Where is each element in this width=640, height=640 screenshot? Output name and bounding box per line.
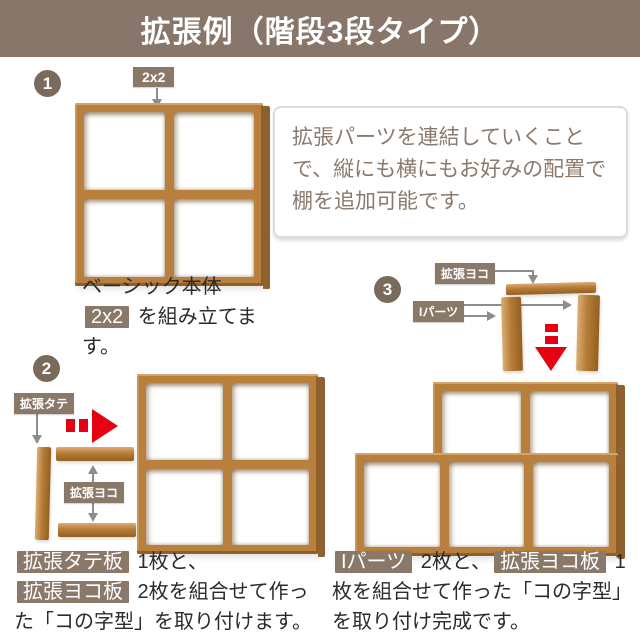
right-arrowhead-icon: [563, 300, 572, 310]
red-right-arrowhead-icon: [92, 409, 118, 443]
shelf-cell: [533, 462, 609, 547]
shelf-2x2-basic: [75, 103, 263, 286]
red-down-arrowhead-icon: [535, 347, 567, 371]
step1-caption: ベーシック本体 2x2 を組み立てます。: [82, 272, 282, 362]
caption-part-badge: Iパーツ: [335, 551, 412, 573]
intro-text: 拡張パーツを連結していくことで、縦にも横にもお好みの配置で棚を追加可能です。: [292, 126, 606, 213]
shelf-cell: [84, 199, 165, 277]
product-infographic: 拡張例（階段3段タイプ） 1 2x2 ベーシック本体 2x2 を組み立てます。 …: [0, 0, 640, 640]
step1-number: 1: [34, 70, 61, 97]
shelf-cell: [84, 112, 165, 190]
label-2x2: 2x2: [133, 67, 174, 87]
caption-text: 1枚と、: [132, 551, 208, 573]
plank-horizontal-yoko-bottom: [58, 523, 136, 537]
caption-part-badge: 拡張ヨコ板: [17, 581, 129, 603]
step3-number: 3: [374, 276, 401, 303]
label-kakucho-yoko-step3: 拡張ヨコ: [435, 263, 495, 284]
down-arrowhead-icon: [88, 513, 98, 522]
shelf-cell: [146, 469, 223, 546]
shelf-staircase-bottom: [355, 453, 618, 556]
leader-line: [494, 270, 534, 272]
down-arrowhead-icon: [32, 435, 42, 444]
red-down-arrow-icon: [545, 336, 558, 344]
caption-part-badge: 拡張タテ板: [17, 551, 129, 573]
red-right-arrow-icon: [79, 419, 88, 432]
caption-text: ベーシック本体: [82, 276, 222, 298]
shelf-2x2-step2: [137, 374, 318, 554]
red-right-arrow-icon: [66, 419, 75, 432]
step2-number: 2: [33, 355, 60, 382]
label-kakucho-tate: 拡張タテ: [14, 393, 74, 414]
plank-vertical-tate: [35, 447, 51, 540]
step3-caption: Iパーツ 2枚と、拡張ヨコ板 1枚を組合せて作った「コの字型」を取り付け完成です…: [332, 547, 638, 637]
plank-horizontal-yoko-step3: [506, 282, 596, 295]
plank-horizontal-yoko-top: [56, 447, 134, 461]
down-arrow-icon: [36, 411, 38, 437]
label-kakucho-yoko: 拡張ヨコ: [64, 482, 124, 503]
right-arrowhead-icon: [487, 311, 496, 321]
shelf-cell: [364, 462, 440, 547]
shelf-cell: [174, 112, 255, 190]
intro-box: 拡張パーツを連結していくことで、縦にも横にもお好みの配置で棚を追加可能です。: [273, 106, 628, 238]
shelf-cell: [232, 469, 309, 546]
leader-line: [463, 315, 489, 317]
label-i-parts: Iパーツ: [413, 301, 464, 322]
shelf-cell: [232, 383, 309, 460]
header-bar: 拡張例（階段3段タイプ）: [0, 0, 640, 57]
red-down-arrow-icon: [545, 324, 558, 332]
shelf-cell: [174, 199, 255, 277]
step2-caption: 拡張タテ板 1枚と、拡張ヨコ板 2枚を組合せて作った「コの字型」を取り付けます。: [14, 547, 320, 637]
shelf-cell: [449, 462, 525, 547]
plank-i-part-right: [576, 295, 600, 372]
shelf-cell: [146, 383, 223, 460]
caption-text: 2枚と、: [415, 551, 491, 573]
plank-i-part-left: [501, 297, 523, 371]
page-title: 拡張例（階段3段タイプ）: [141, 7, 500, 51]
caption-part-badge: 2x2: [85, 306, 129, 328]
caption-part-badge: 拡張ヨコ板: [494, 551, 606, 573]
